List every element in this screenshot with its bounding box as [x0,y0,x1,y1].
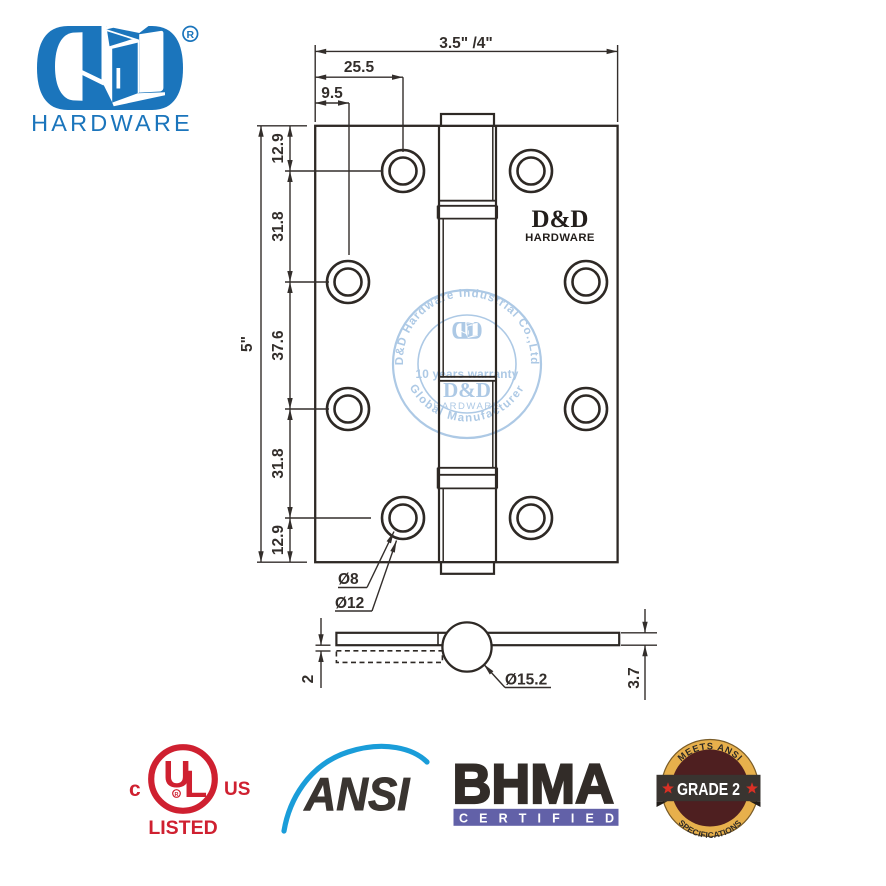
svg-text:12.9: 12.9 [270,133,287,164]
svg-text:Ø15.2: Ø15.2 [505,672,547,689]
svg-text:HARDWARE: HARDWARE [525,232,595,244]
svg-text:9.5: 9.5 [321,85,343,102]
svg-text:5": 5" [239,336,256,352]
svg-text:L: L [184,764,207,806]
svg-text:HARDWARE: HARDWARE [433,401,500,412]
svg-text:12.9: 12.9 [270,525,287,556]
svg-text:GRADE 2: GRADE 2 [677,779,740,799]
svg-text:2: 2 [300,675,317,684]
svg-text:3.7: 3.7 [626,667,643,689]
svg-text:ANSI: ANSI [304,768,411,820]
svg-text:LISTED: LISTED [148,817,217,839]
svg-text:Ø12: Ø12 [335,595,364,612]
svg-text:US: US [224,779,250,800]
svg-text:BHMA: BHMA [453,752,615,815]
svg-text:37.6: 37.6 [270,330,287,361]
svg-text:31.8: 31.8 [270,211,287,242]
svg-text:Ø8: Ø8 [338,571,359,588]
svg-text:R: R [175,792,179,798]
svg-text:HARDWARE: HARDWARE [31,110,193,136]
svg-text:25.5: 25.5 [344,59,375,76]
svg-text:3.5" /4": 3.5" /4" [439,35,492,52]
svg-text:c: c [129,778,141,801]
svg-text:31.8: 31.8 [270,448,287,479]
svg-text:D&D: D&D [532,206,589,233]
svg-text:R: R [187,29,195,41]
